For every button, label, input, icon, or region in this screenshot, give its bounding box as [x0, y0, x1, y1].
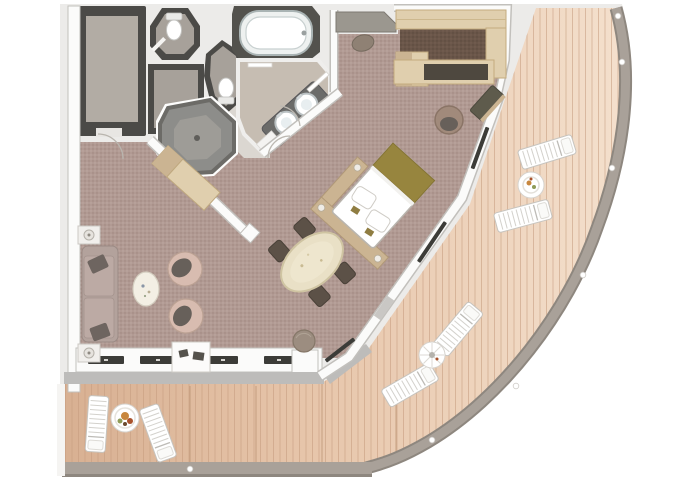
deck-table	[111, 404, 139, 432]
desk	[394, 60, 494, 84]
deck-table	[518, 172, 544, 198]
bottom-railing-edge	[62, 474, 372, 477]
floor-plan-stage: Suite floor plan	[0, 0, 680, 486]
coffee-table	[133, 272, 159, 306]
water-closet-1	[150, 8, 200, 60]
luggage-bench	[336, 12, 396, 32]
bathtub-icon	[240, 11, 312, 55]
shower-drain	[194, 135, 200, 141]
bottom-sill	[64, 372, 324, 384]
toilet-icon	[166, 13, 182, 40]
deck-table	[419, 342, 445, 368]
toilet-icon	[218, 78, 234, 104]
balcony-left-trim	[57, 384, 65, 476]
sun-lounger	[85, 395, 109, 452]
sofa	[82, 246, 118, 342]
bottom-railing	[62, 462, 372, 476]
bathtub-alcove	[232, 6, 320, 60]
desk-chair	[435, 106, 463, 134]
towel-bar	[248, 63, 272, 67]
left-outer-wall	[68, 6, 80, 392]
tv-cabinet	[172, 342, 210, 372]
end-table-with-lamp	[78, 226, 100, 244]
floor-plan-drawing	[0, 0, 680, 486]
round-pouf	[293, 330, 315, 352]
end-table-with-lamp	[78, 344, 100, 362]
